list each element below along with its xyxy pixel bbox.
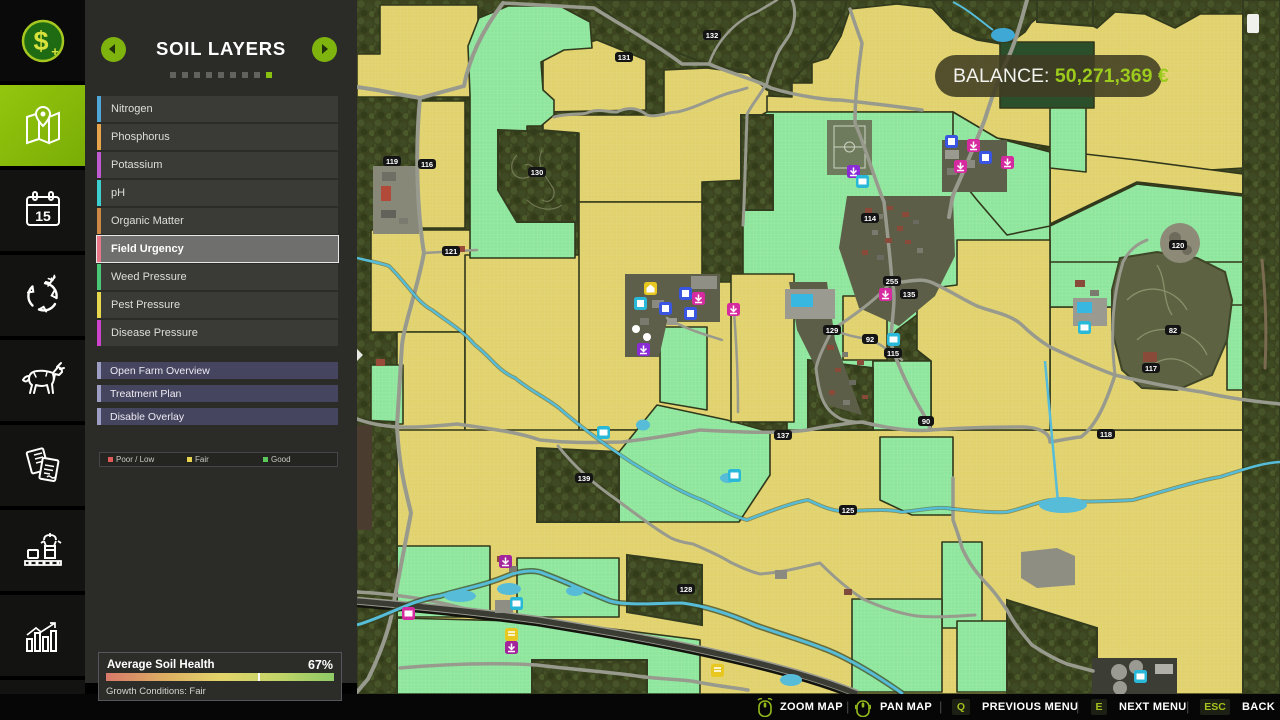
svg-text:125: 125 (842, 506, 855, 515)
svg-text:132: 132 (706, 31, 719, 40)
svg-text:115: 115 (887, 349, 899, 358)
svg-text:117: 117 (1145, 364, 1157, 373)
svg-text:130: 130 (531, 168, 544, 177)
svg-text:119: 119 (386, 157, 398, 166)
svg-text:82: 82 (1169, 326, 1177, 335)
svg-text:121: 121 (445, 247, 458, 256)
svg-text:116: 116 (421, 160, 433, 169)
svg-text:90: 90 (922, 417, 930, 426)
svg-text:135: 135 (903, 290, 916, 299)
svg-text:15: 15 (35, 208, 51, 224)
svg-text:128: 128 (680, 585, 693, 594)
svg-text:129: 129 (826, 326, 839, 335)
svg-text:118: 118 (1100, 430, 1112, 439)
svg-text:$: $ (33, 26, 48, 56)
svg-text:92: 92 (866, 335, 874, 344)
svg-text:114: 114 (864, 214, 877, 223)
svg-text:+: + (51, 44, 59, 59)
svg-text:255: 255 (886, 277, 899, 286)
svg-text:120: 120 (1172, 241, 1185, 250)
svg-text:137: 137 (777, 431, 790, 440)
svg-text:139: 139 (578, 474, 591, 483)
svg-text:131: 131 (618, 53, 631, 62)
